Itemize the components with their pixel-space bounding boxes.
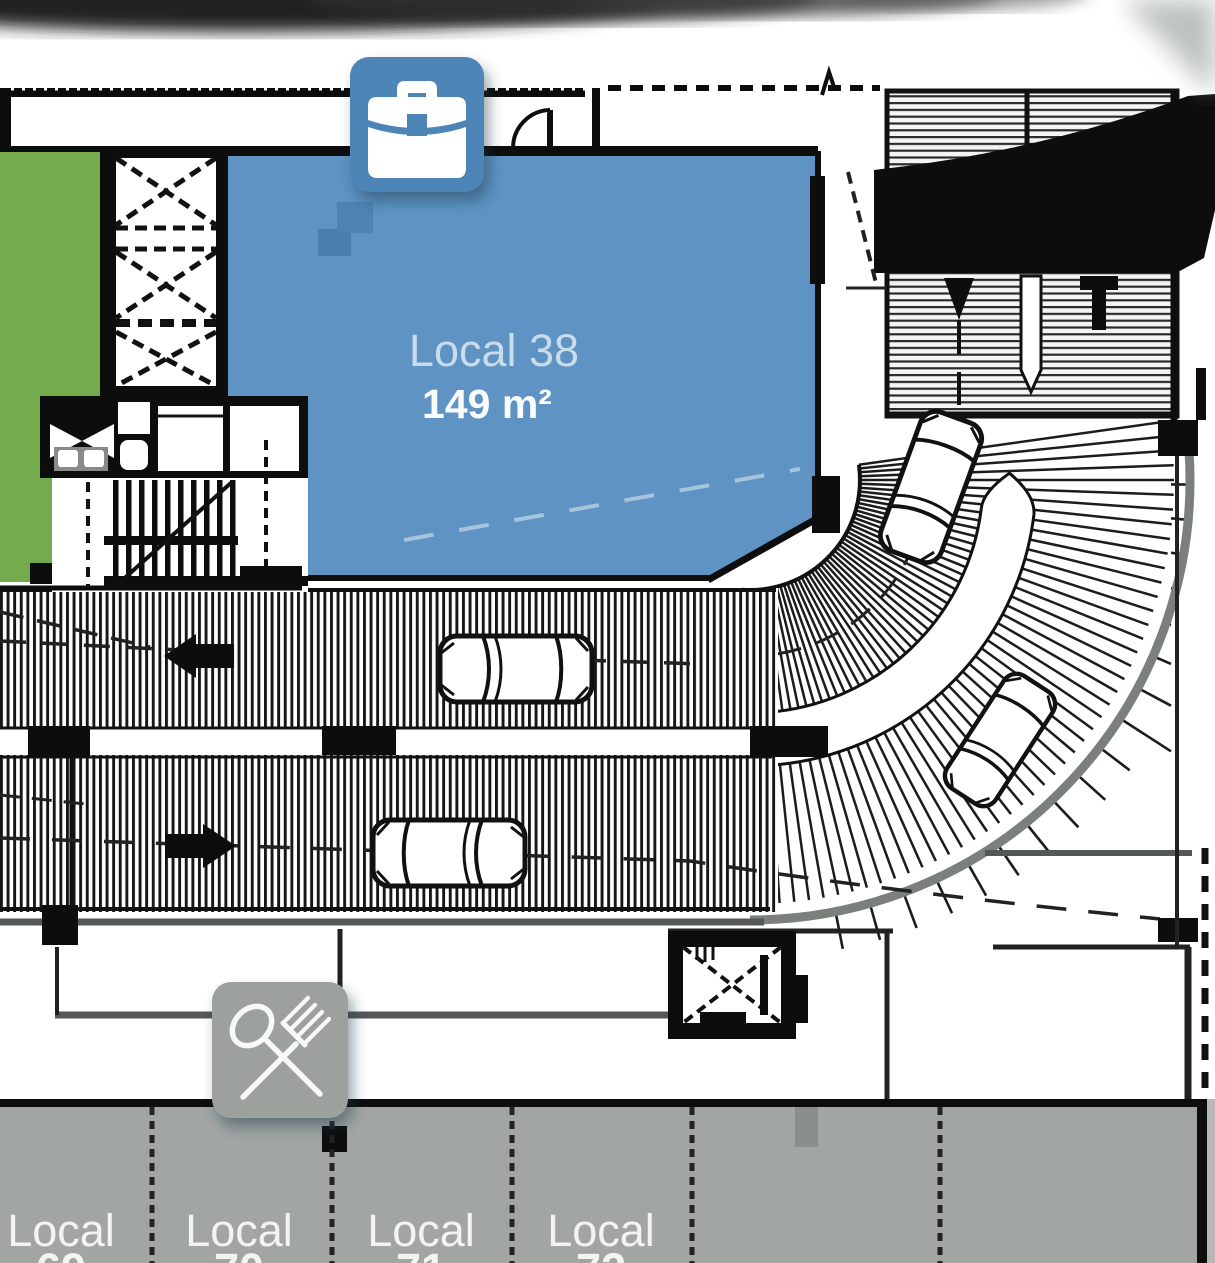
- svg-text:71: 71: [396, 1244, 446, 1263]
- svg-text:Local 38: Local 38: [409, 325, 579, 376]
- svg-text:149 m²: 149 m²: [422, 381, 552, 427]
- svg-text:69: 69: [36, 1244, 86, 1263]
- svg-text:72: 72: [576, 1244, 626, 1263]
- svg-text:70: 70: [214, 1244, 264, 1263]
